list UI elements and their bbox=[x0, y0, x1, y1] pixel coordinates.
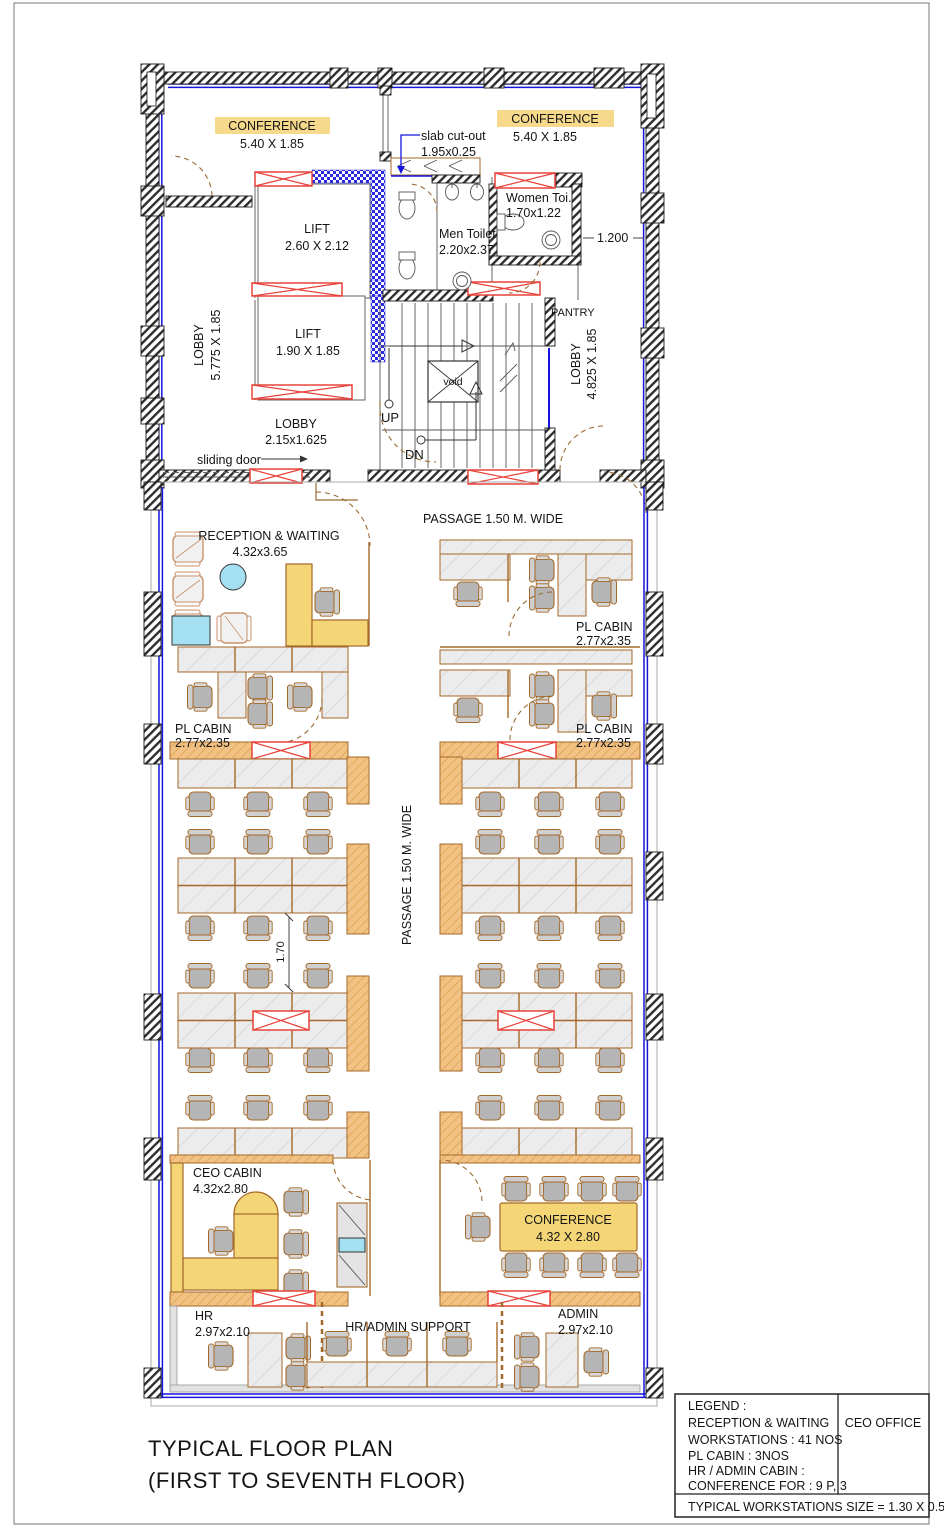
women-toilet-dims: 1.70x1.22 bbox=[506, 206, 561, 220]
lobby-right-label: LOBBY bbox=[569, 342, 583, 384]
pantry-label: PANTRY bbox=[551, 307, 595, 319]
hr-label: HR bbox=[195, 1309, 213, 1323]
floor-plan-sheet: CONFERENCE 5.40 X 1.85 CONFERENCE 5.40 X… bbox=[0, 0, 944, 1532]
lobby-right-dims: 4.825 X 1.85 bbox=[585, 329, 599, 400]
hr-dims: 2.97x2.10 bbox=[195, 1325, 250, 1339]
hr-admin-support-label: HR/ADMIN SUPPORT bbox=[345, 1320, 471, 1334]
conference-tr-label: CONFERENCE bbox=[511, 112, 599, 126]
legend-line3: PL CABIN : 3NOS bbox=[688, 1449, 789, 1463]
pl-cabin-ru-label: PL CABIN bbox=[576, 620, 633, 634]
dn-label: DN bbox=[405, 447, 424, 462]
conference-tl-dims: 5.40 X 1.85 bbox=[240, 137, 304, 151]
passage-center-label: PASSAGE 1.50 M. WIDE bbox=[400, 805, 414, 945]
lift-lower-dims: 1.90 X 1.85 bbox=[276, 344, 340, 358]
legend-line2: WORKSTATIONS : 41 NOS bbox=[688, 1433, 842, 1447]
lift-upper-dims: 2.60 X 2.12 bbox=[285, 239, 349, 253]
passage-top-label: PASSAGE 1.50 M. WIDE bbox=[423, 512, 563, 526]
lobby-center-dims: 2.15x1.625 bbox=[265, 433, 327, 447]
conference-bottom-dims: 4.32 X 2.80 bbox=[536, 1230, 600, 1244]
conference-bottom-label: CONFERENCE bbox=[524, 1213, 612, 1227]
dim-170-label: 1.70 bbox=[275, 941, 287, 962]
conference-tr-dims: 5.40 X 1.85 bbox=[513, 130, 577, 144]
round-table bbox=[220, 564, 246, 590]
admin-dims: 2.97x2.10 bbox=[558, 1323, 613, 1337]
legend-footer: TYPICAL WORKSTATIONS SIZE = 1.30 X 0.55 bbox=[688, 1500, 944, 1514]
men-toilet-label: Men Toilet bbox=[439, 227, 496, 241]
legend-project: CEO OFFICE bbox=[845, 1416, 921, 1430]
slab-cutout-dims: 1.95x0.25 bbox=[421, 145, 476, 159]
lobby-left-label: LOBBY bbox=[192, 323, 206, 365]
floor-plan-canvas: CONFERENCE 5.40 X 1.85 CONFERENCE 5.40 X… bbox=[0, 0, 944, 1532]
workstations-right bbox=[440, 757, 632, 1158]
ceo-cabin-label: CEO CABIN bbox=[193, 1166, 262, 1180]
slab-cutout-label: slab cut-out bbox=[421, 129, 486, 143]
reception-dims: 4.32x3.65 bbox=[233, 545, 288, 559]
pl-cabin-left-dims: 2.77x2.35 bbox=[175, 736, 230, 750]
sliding-door-label: sliding door bbox=[197, 453, 261, 467]
reception-area bbox=[172, 492, 370, 646]
side-table bbox=[172, 616, 210, 645]
title-line2: (FIRST TO SEVENTH FLOOR) bbox=[148, 1468, 466, 1493]
reception-label: RECEPTION & WAITING bbox=[198, 529, 339, 543]
admin-label: ADMIN bbox=[558, 1307, 598, 1321]
conference-tl-label: CONFERENCE bbox=[228, 119, 316, 133]
pl-cabin-rl-label: PL CABIN bbox=[576, 722, 633, 736]
staircase bbox=[382, 303, 545, 468]
men-toilet-dims: 2.20x2.37 bbox=[439, 243, 494, 257]
legend-block: LEGEND : RECEPTION & WAITING WORKSTATION… bbox=[675, 1394, 944, 1517]
dim-1200-label: 1.200 bbox=[597, 231, 628, 245]
reception-desk bbox=[286, 564, 312, 646]
cabin-partitions bbox=[170, 742, 640, 759]
lobby-left-dims: 5.775 X 1.85 bbox=[209, 310, 223, 381]
drawing-title: TYPICAL FLOOR PLAN (FIRST TO SEVENTH FLO… bbox=[148, 1436, 466, 1493]
void-label: void bbox=[443, 376, 462, 388]
lift-upper-label: LIFT bbox=[304, 222, 330, 236]
ceo-cabin-dims: 4.32x2.80 bbox=[193, 1182, 248, 1196]
lobby-center-label: LOBBY bbox=[275, 417, 317, 431]
women-toilet-label: Women Toi. bbox=[506, 191, 572, 205]
pl-cabin-left-label: PL CABIN bbox=[175, 722, 232, 736]
legend-line1: RECEPTION & WAITING bbox=[688, 1416, 829, 1430]
legend-line4: HR / ADMIN CABIN : bbox=[688, 1464, 805, 1478]
lift-lower-label: LIFT bbox=[295, 327, 321, 341]
workstations-left bbox=[178, 757, 369, 1158]
title-line1: TYPICAL FLOOR PLAN bbox=[148, 1436, 393, 1461]
pl-cabin-ru-dims: 2.77x2.35 bbox=[576, 634, 631, 648]
legend-heading: LEGEND : bbox=[688, 1399, 746, 1413]
pl-cabin-rl-dims: 2.77x2.35 bbox=[576, 736, 631, 750]
legend-line5: CONFERENCE FOR : 9 P, 3 bbox=[688, 1479, 847, 1493]
up-label: UP bbox=[381, 410, 399, 425]
